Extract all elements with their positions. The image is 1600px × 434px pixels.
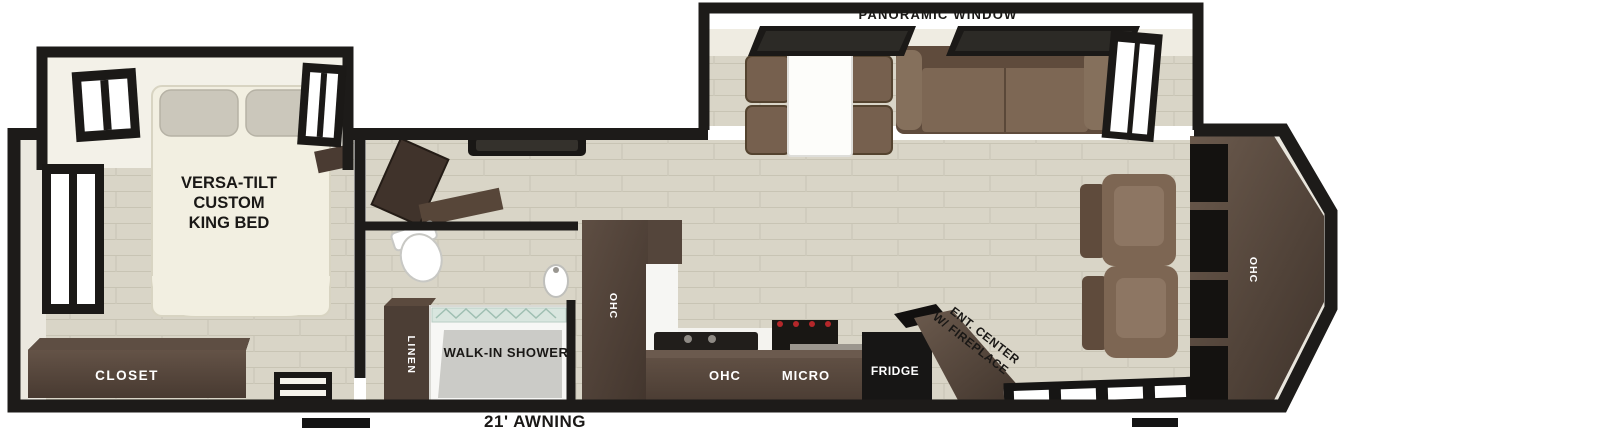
cubby bbox=[1190, 280, 1228, 338]
recliner bbox=[1082, 266, 1178, 358]
bedroom-side-window bbox=[42, 164, 104, 314]
upper-ohc-cabinet bbox=[648, 220, 682, 264]
bed-foot bbox=[152, 276, 330, 316]
recliner bbox=[1080, 174, 1176, 266]
bed-slideout-window bbox=[72, 68, 141, 142]
bath-faucet bbox=[553, 267, 559, 273]
linen-cabinet-top bbox=[384, 298, 436, 306]
cubby bbox=[1190, 210, 1228, 272]
king-bed-label-line3: KING BED bbox=[149, 213, 309, 233]
dinette-chair bbox=[848, 106, 892, 154]
dinette bbox=[746, 40, 892, 156]
sofa bbox=[896, 46, 1110, 134]
exterior-tab bbox=[1132, 418, 1178, 427]
walk-in-shower-label: WALK-IN SHOWER bbox=[426, 345, 586, 360]
king-bed-label: VERSA-TILT CUSTOM KING BED bbox=[149, 173, 309, 233]
closet-label: CLOSET bbox=[47, 368, 207, 383]
bed-slideout-side-window bbox=[297, 63, 347, 148]
shower-floor bbox=[438, 330, 562, 398]
cubby bbox=[1190, 346, 1228, 404]
king-bed-label-line1: VERSA-TILT bbox=[149, 173, 309, 193]
panoramic-window-left bbox=[748, 26, 916, 56]
panoramic-window-label: PANORAMIC WINDOW bbox=[788, 7, 1088, 22]
linen-label: LINEN bbox=[405, 325, 417, 385]
pantry-ohc-label: OHC bbox=[607, 276, 619, 336]
kitchen-sink bbox=[654, 332, 758, 352]
dinette-chair bbox=[848, 56, 892, 102]
dinette-chair bbox=[746, 56, 790, 102]
living-slideout-side-window bbox=[1102, 30, 1163, 142]
sofa-armrest bbox=[896, 50, 922, 130]
counter-ohc-label: OHC bbox=[695, 368, 755, 383]
rear-ohc-label: OHC bbox=[1247, 240, 1259, 300]
cubby bbox=[1190, 144, 1228, 202]
rv-floorplan: PANORAMIC WINDOW VERSA-TILT CUSTOM KING … bbox=[0, 0, 1600, 434]
exterior-tab bbox=[302, 418, 370, 428]
microwave-label: MICRO bbox=[756, 368, 856, 383]
dinette-chair bbox=[746, 106, 790, 154]
pillow-left bbox=[160, 90, 238, 136]
bedroom-steps bbox=[274, 372, 332, 402]
awning-label: 21' AWNING bbox=[435, 412, 635, 432]
king-bed-label-line2: CUSTOM bbox=[149, 193, 309, 213]
fridge-label: FRIDGE bbox=[845, 364, 945, 378]
dinette-table bbox=[788, 40, 852, 156]
